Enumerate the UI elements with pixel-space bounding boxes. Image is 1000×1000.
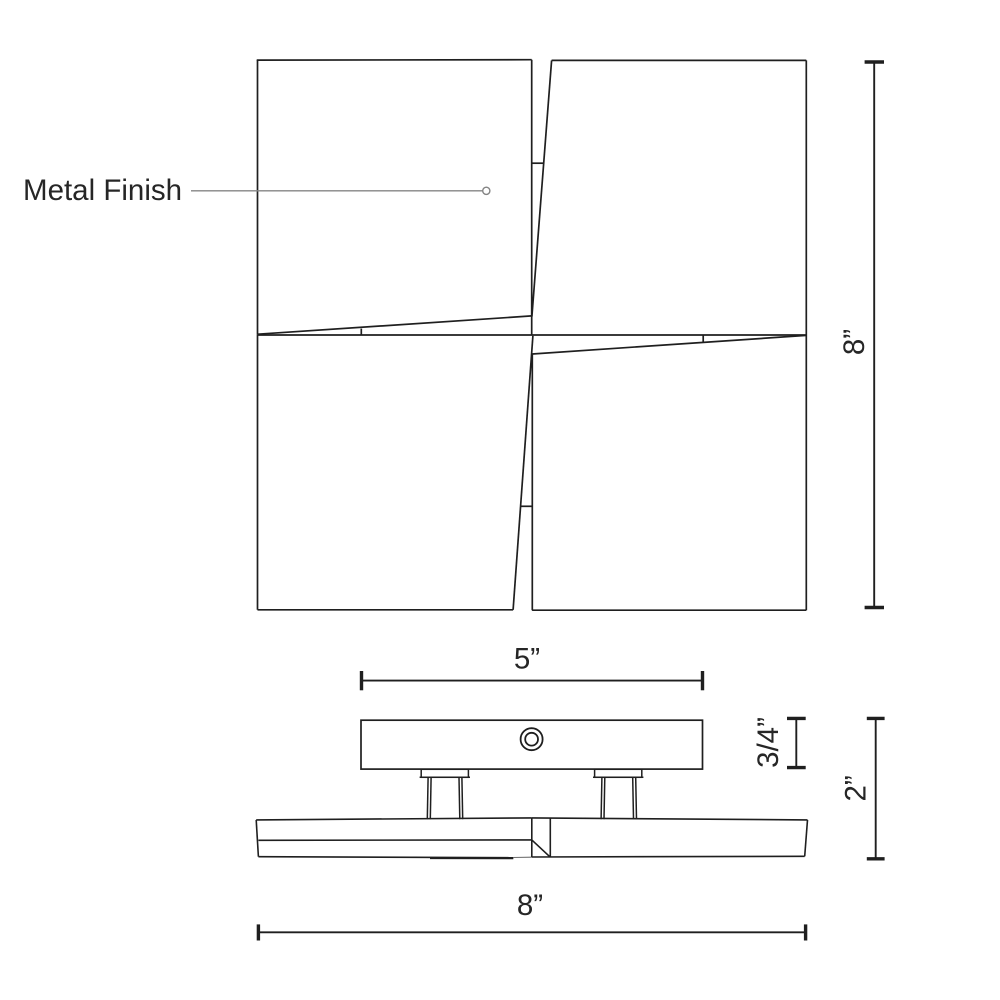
svg-text:5”: 5” xyxy=(514,643,540,676)
svg-text:8”: 8” xyxy=(838,329,871,355)
svg-text:2”: 2” xyxy=(840,775,873,801)
svg-text:Metal Finish: Metal Finish xyxy=(23,174,182,207)
svg-text:8”: 8” xyxy=(517,889,543,922)
svg-text:3/4”: 3/4” xyxy=(752,717,785,768)
